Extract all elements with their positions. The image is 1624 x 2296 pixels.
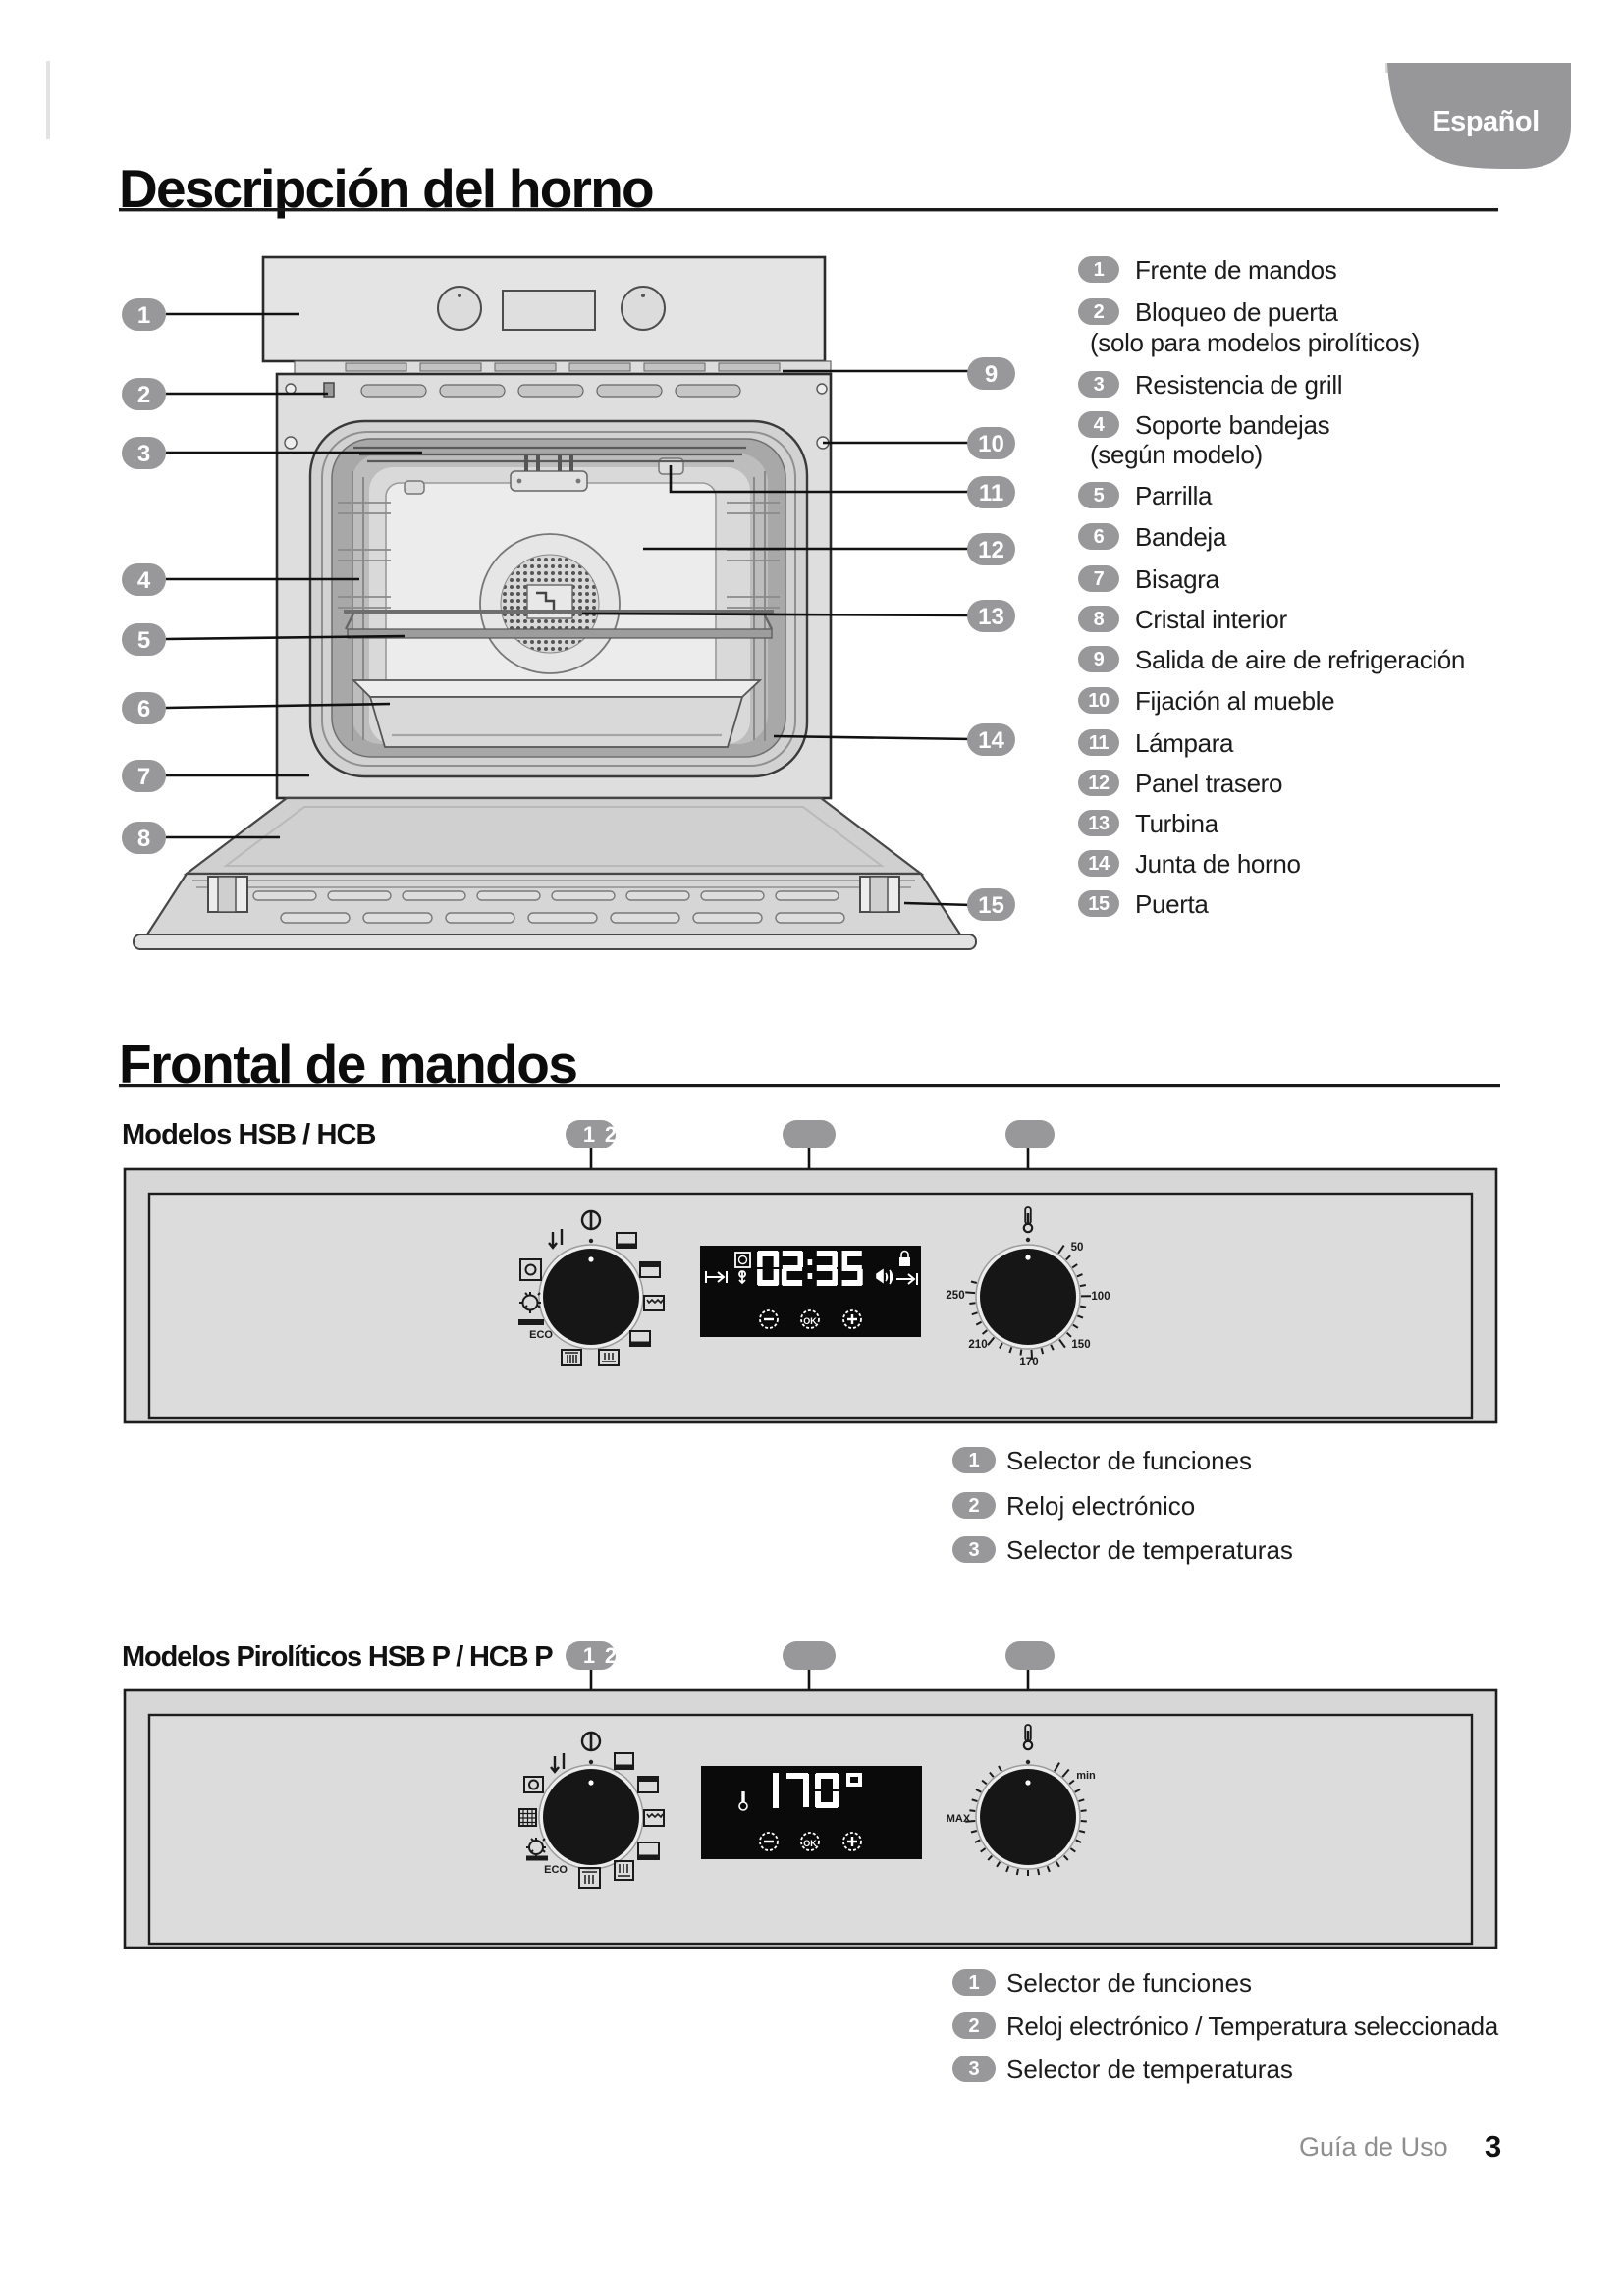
svg-text:Resistencia de grill: Resistencia de grill (1135, 370, 1342, 400)
svg-text:Panel trasero: Panel trasero (1135, 769, 1282, 798)
svg-text:ECO: ECO (544, 1864, 568, 1876)
svg-text:Selector de temperaturas: Selector de temperaturas (1006, 1535, 1293, 1565)
svg-text:6: 6 (1094, 526, 1105, 548)
svg-text:50: 50 (1071, 1242, 1084, 1254)
svg-text:3: 3 (1094, 374, 1105, 396)
svg-text:Modelos Pirolíticos HSB P / HC: Modelos Pirolíticos HSB P / HCB P (122, 1641, 553, 1673)
svg-text:Selector de temperaturas: Selector de temperaturas (1006, 2055, 1293, 2084)
svg-text:Bandeja: Bandeja (1135, 522, 1227, 552)
svg-text:3: 3 (137, 441, 150, 467)
svg-text:7: 7 (137, 764, 150, 790)
svg-text:ECO: ECO (529, 1329, 553, 1341)
svg-text:1: 1 (968, 1972, 979, 1994)
svg-text:Reloj electrónico: Reloj electrónico (1006, 1491, 1195, 1521)
svg-text:1: 1 (137, 302, 150, 329)
svg-text:4: 4 (1094, 414, 1106, 436)
svg-text:Modelos HSB / HCB: Modelos HSB / HCB (122, 1119, 376, 1150)
svg-text:5: 5 (137, 627, 150, 654)
svg-text:2: 2 (968, 1495, 979, 1517)
svg-text:(según modelo): (según modelo) (1090, 440, 1263, 469)
svg-text:170: 170 (1019, 1357, 1038, 1368)
svg-text:15: 15 (1088, 893, 1110, 915)
svg-text:Selector de funciones: Selector de funciones (1006, 1968, 1252, 1998)
svg-text:11: 11 (979, 480, 1003, 507)
svg-text:12: 12 (1088, 773, 1110, 794)
svg-text:1: 1 (583, 1643, 595, 1668)
svg-text:250: 250 (946, 1290, 964, 1302)
svg-text:Soporte bandejas: Soporte bandejas (1135, 410, 1330, 440)
svg-text:Bloqueo de puerta: Bloqueo de puerta (1135, 297, 1338, 327)
svg-text:Reloj electrónico / Temperatur: Reloj electrónico / Temperatura seleccio… (1006, 2011, 1499, 2041)
svg-text:Junta de horno: Junta de horno (1135, 849, 1301, 879)
svg-text:Cristal interior: Cristal interior (1135, 605, 1287, 634)
svg-text:Frente de mandos: Frente de mandos (1135, 255, 1337, 285)
svg-text:Fijación al mueble: Fijación al mueble (1135, 686, 1334, 716)
svg-text:Salida de aire de refrigeració: Salida de aire de refrigeración (1135, 645, 1465, 674)
svg-text:(solo para modelos pirolíticos: (solo para modelos pirolíticos) (1090, 328, 1420, 357)
svg-text:2: 2 (605, 1122, 617, 1147)
svg-text:14: 14 (1088, 853, 1110, 875)
svg-text:150: 150 (1071, 1339, 1090, 1351)
svg-text:10: 10 (1088, 690, 1110, 712)
svg-text:9: 9 (985, 361, 998, 388)
svg-text:3: 3 (968, 1539, 979, 1561)
svg-text:13: 13 (978, 604, 1004, 630)
svg-text:Parrilla: Parrilla (1135, 481, 1213, 510)
svg-text:Turbina: Turbina (1135, 809, 1219, 838)
svg-text:min: min (1076, 1770, 1096, 1782)
svg-text:2: 2 (968, 2015, 979, 2037)
svg-text:2: 2 (137, 382, 150, 408)
svg-text:100: 100 (1091, 1291, 1110, 1303)
svg-text:3: 3 (1485, 2129, 1501, 2163)
svg-text:1: 1 (968, 1450, 979, 1471)
svg-text:OK: OK (803, 1316, 817, 1326)
svg-text:Puerta: Puerta (1135, 889, 1209, 919)
svg-text:Español: Español (1432, 106, 1539, 137)
svg-text:11: 11 (1089, 732, 1110, 754)
svg-text:9: 9 (1094, 649, 1105, 670)
svg-text:5: 5 (1094, 485, 1105, 507)
svg-text:15: 15 (978, 892, 1004, 919)
svg-text:MAX: MAX (947, 1813, 971, 1825)
svg-text:6: 6 (137, 696, 150, 722)
svg-text:Guía de Uso: Guía de Uso (1299, 2132, 1448, 2162)
svg-text:12: 12 (978, 537, 1004, 563)
svg-text:10: 10 (978, 431, 1004, 457)
svg-text:2: 2 (605, 1643, 617, 1668)
svg-text:Selector de funciones: Selector de funciones (1006, 1446, 1252, 1475)
svg-text:2: 2 (1094, 301, 1105, 323)
svg-text:13: 13 (1088, 813, 1110, 834)
svg-text:4: 4 (137, 567, 151, 594)
svg-text:8: 8 (1094, 609, 1105, 630)
svg-text:OK: OK (803, 1839, 817, 1848)
svg-text:Lámpara: Lámpara (1135, 728, 1234, 758)
svg-text:210: 210 (968, 1339, 987, 1351)
svg-text:1: 1 (1094, 259, 1105, 281)
svg-text:14: 14 (978, 727, 1004, 754)
svg-text:8: 8 (137, 826, 150, 852)
svg-text:3: 3 (968, 2058, 979, 2080)
svg-text:1: 1 (583, 1122, 595, 1147)
svg-text:7: 7 (1094, 568, 1105, 590)
svg-text:Bisagra: Bisagra (1135, 564, 1220, 594)
